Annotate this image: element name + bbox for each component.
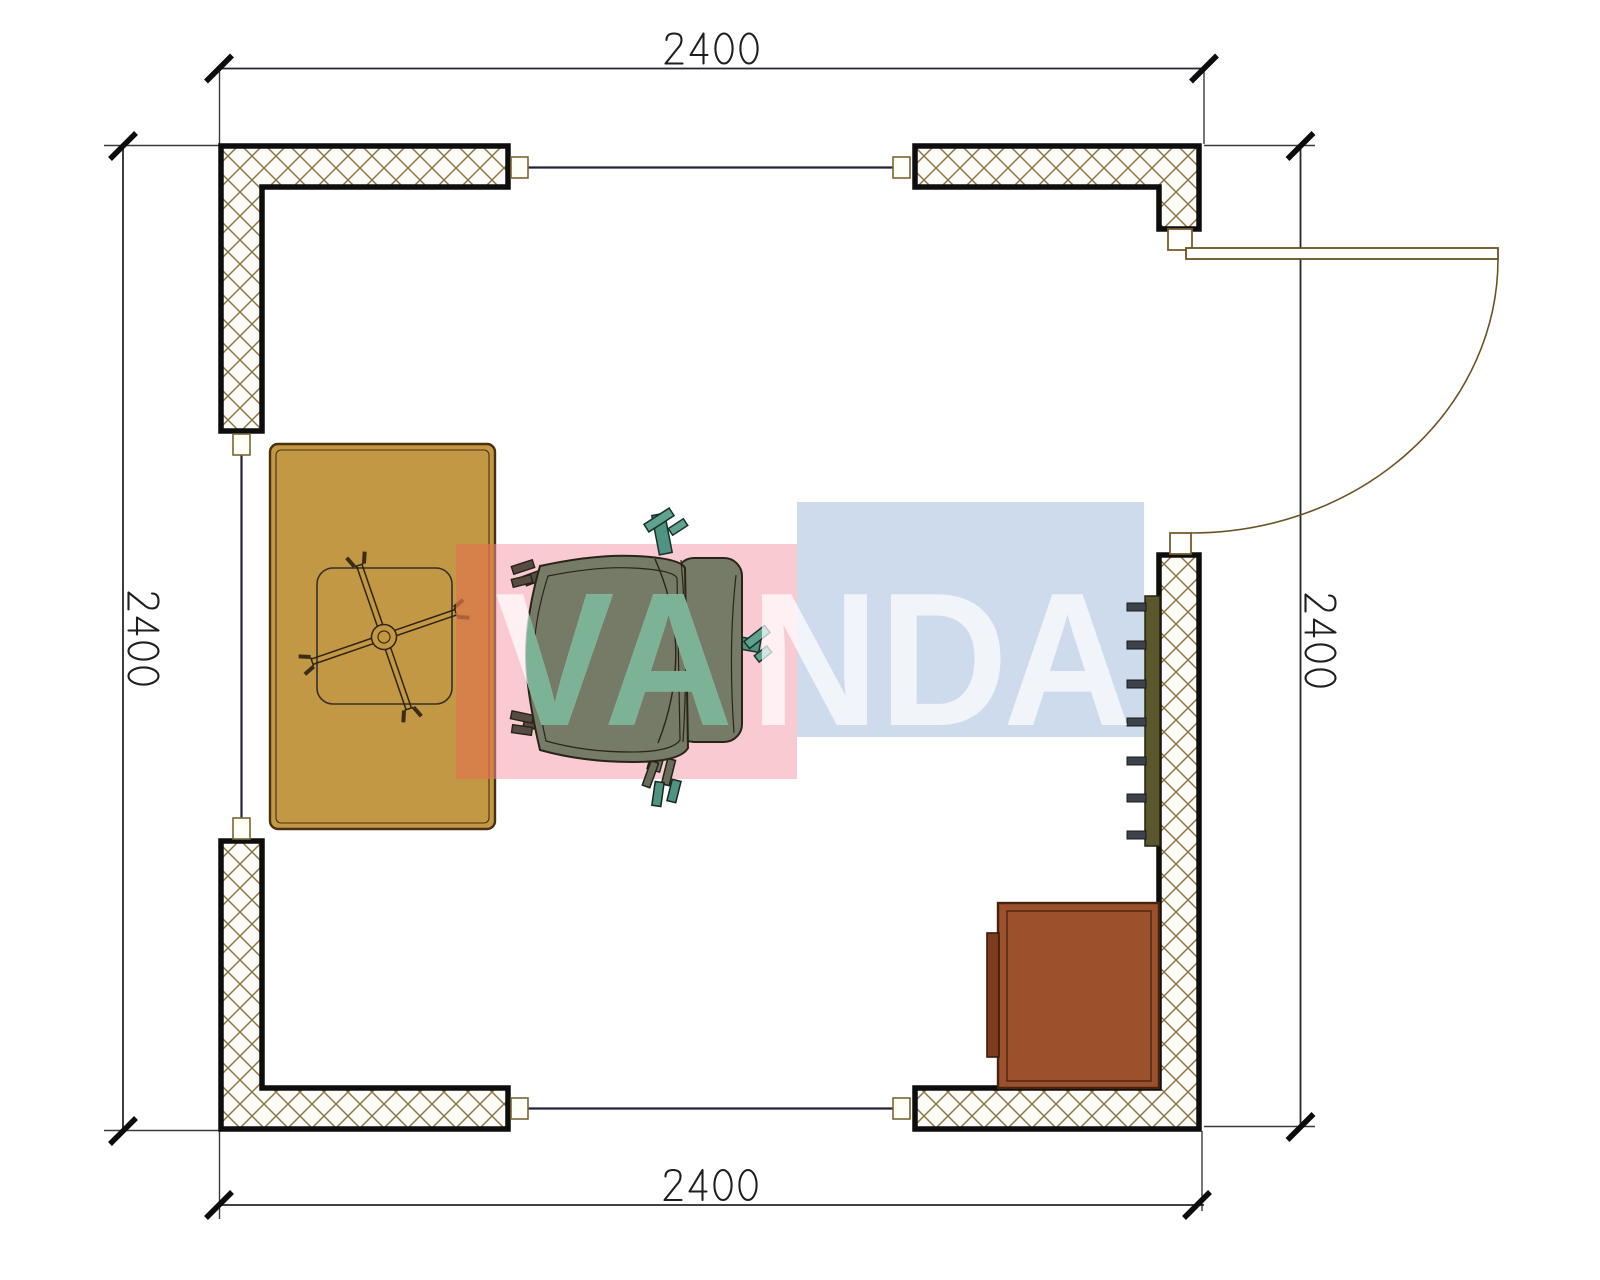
- svg-text:D: D: [879, 554, 1008, 766]
- svg-text:N: N: [750, 554, 879, 766]
- svg-text:A: A: [1003, 554, 1132, 766]
- svg-text:A: A: [604, 554, 733, 766]
